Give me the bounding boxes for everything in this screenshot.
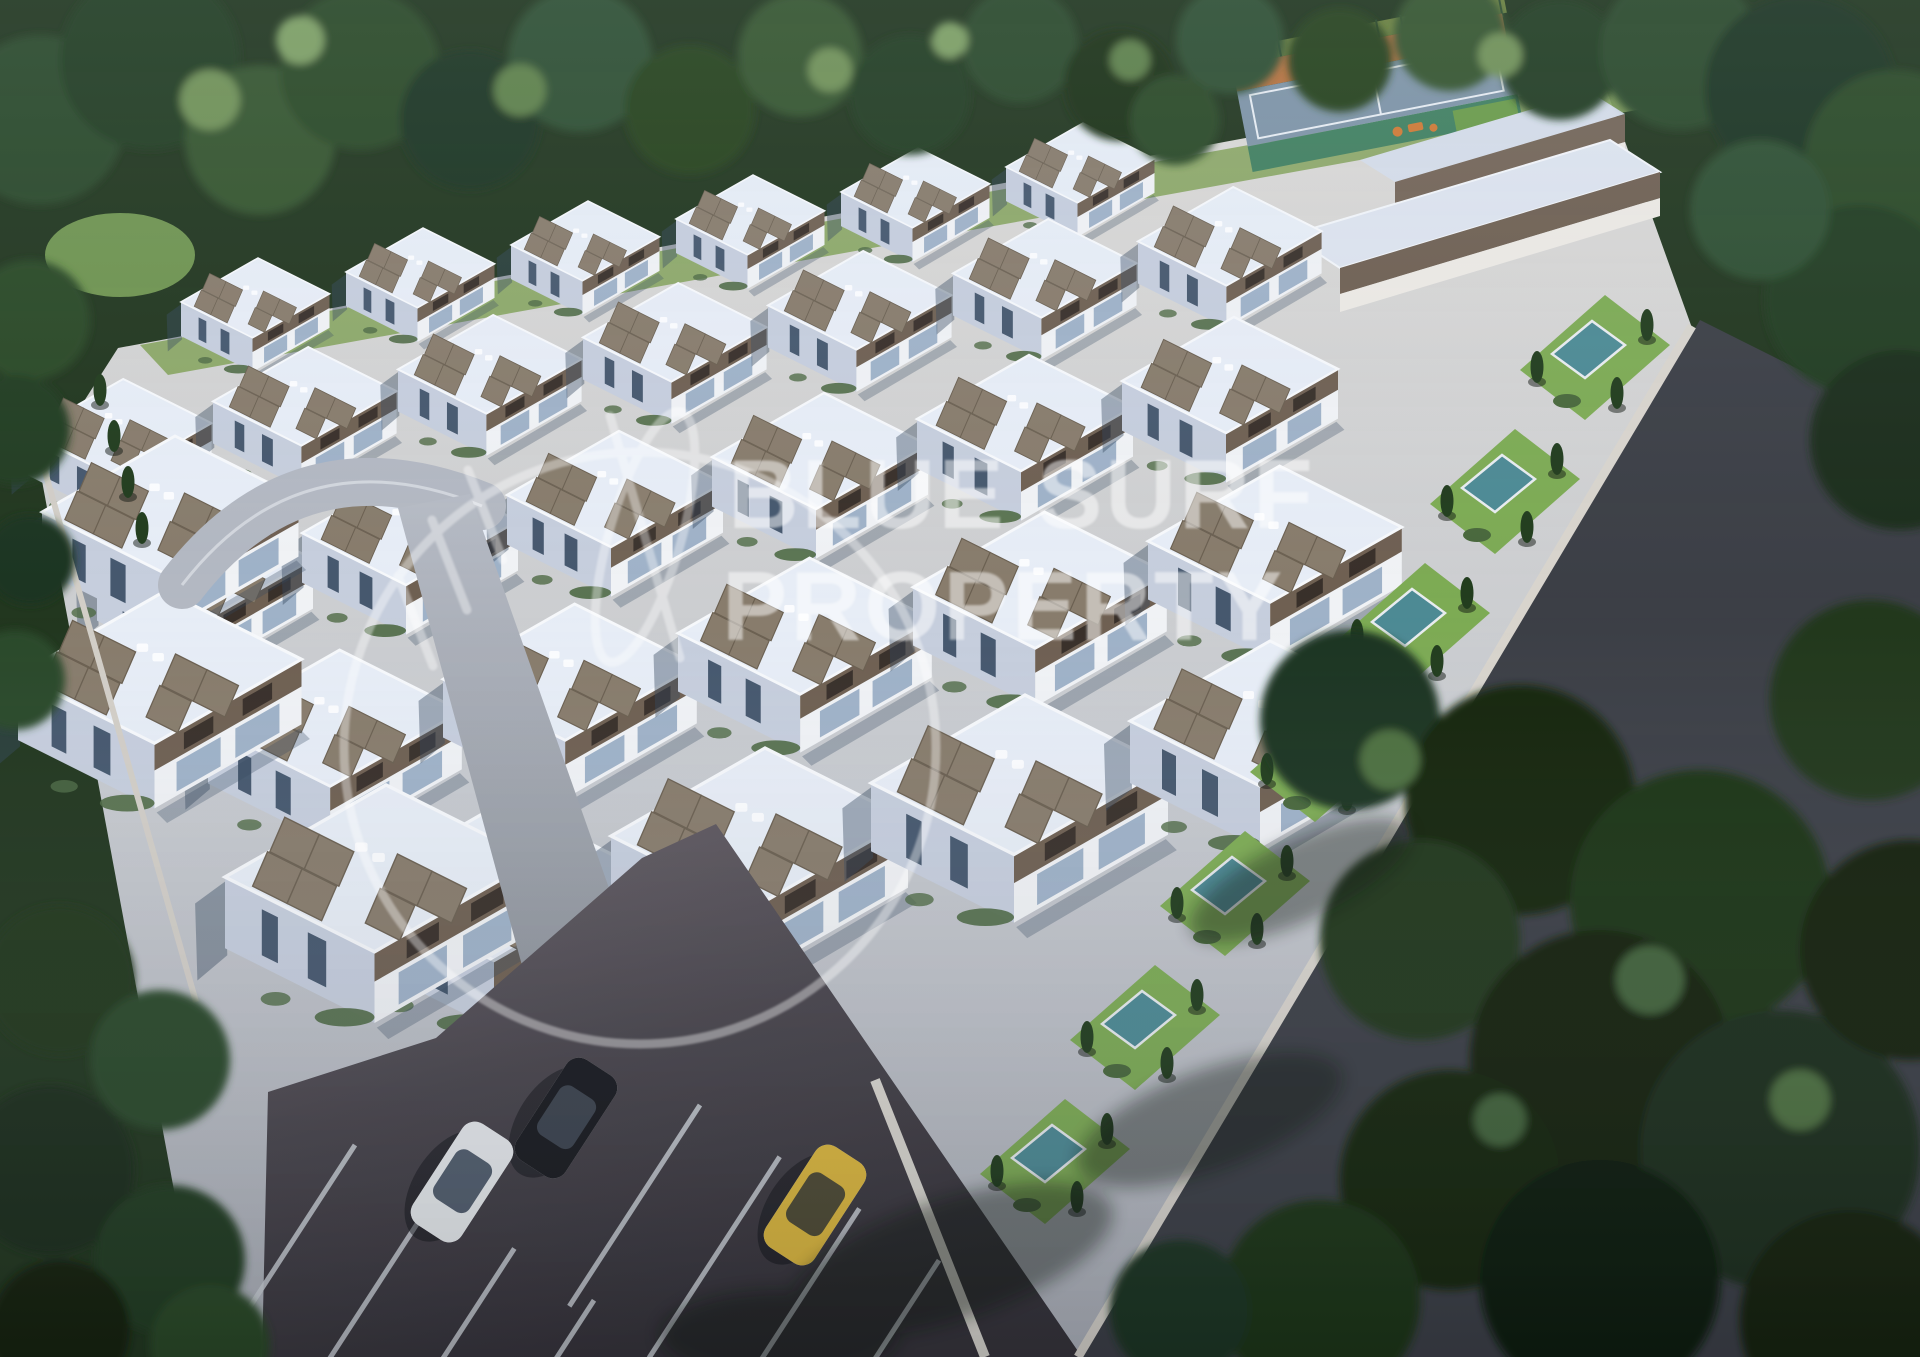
watermark-line1: BLUE SURF [728,439,1316,549]
watermark-line2: PROPERTY [722,551,1285,661]
render-image: BLUE SURF PROPERTY [0,0,1920,1357]
scene-canvas: BLUE SURF PROPERTY [0,0,1920,1357]
haze-overlay [0,0,1920,1357]
